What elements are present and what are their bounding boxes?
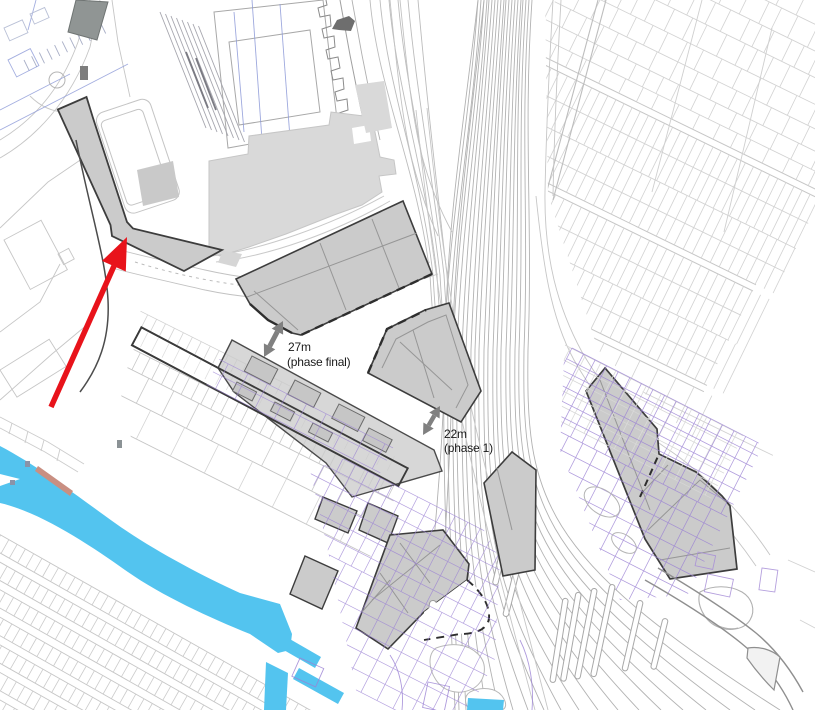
svg-text:(phase final): (phase final) (287, 355, 351, 369)
svg-text:27m: 27m (288, 340, 311, 354)
svg-text:22m: 22m (444, 427, 467, 441)
svg-text:(phase 1): (phase 1) (444, 441, 493, 455)
